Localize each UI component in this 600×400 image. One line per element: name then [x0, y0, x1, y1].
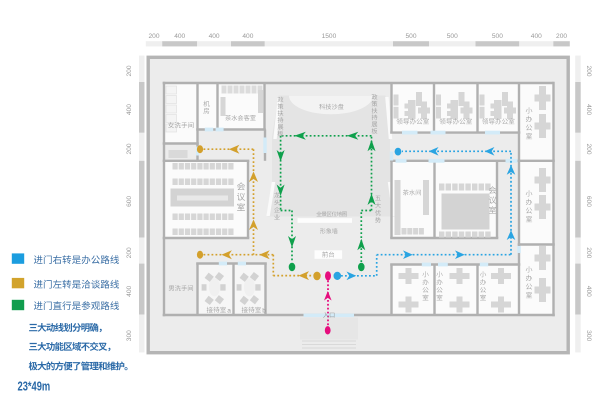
svg-text:500: 500 — [492, 33, 503, 40]
svg-text:400: 400 — [126, 285, 133, 296]
svg-text:500: 500 — [405, 33, 416, 40]
svg-text:1500: 1500 — [322, 33, 337, 40]
svg-text:200: 200 — [585, 65, 592, 76]
svg-text:400: 400 — [126, 104, 133, 115]
svg-text:400: 400 — [531, 33, 542, 40]
svg-text:400: 400 — [585, 286, 592, 297]
svg-text:a: a — [227, 307, 231, 314]
svg-text:200: 200 — [148, 33, 159, 40]
svg-text:300: 300 — [585, 330, 592, 341]
svg-text:400: 400 — [209, 33, 220, 40]
svg-text:200: 200 — [585, 247, 592, 258]
svg-text:23*49m: 23*49m — [18, 380, 51, 394]
svg-text:200: 200 — [126, 247, 133, 258]
svg-text:600: 600 — [585, 196, 592, 207]
svg-text:400: 400 — [174, 33, 185, 40]
svg-text:600: 600 — [126, 196, 133, 207]
svg-text:200: 200 — [585, 143, 592, 154]
svg-text:200: 200 — [556, 33, 567, 40]
svg-text:200: 200 — [126, 65, 133, 76]
svg-text:b: b — [262, 307, 266, 314]
svg-text:200: 200 — [126, 143, 133, 154]
svg-text:500: 500 — [447, 33, 458, 40]
svg-text:300: 300 — [126, 330, 133, 341]
svg-text:400: 400 — [242, 33, 253, 40]
svg-text:400: 400 — [585, 104, 592, 115]
